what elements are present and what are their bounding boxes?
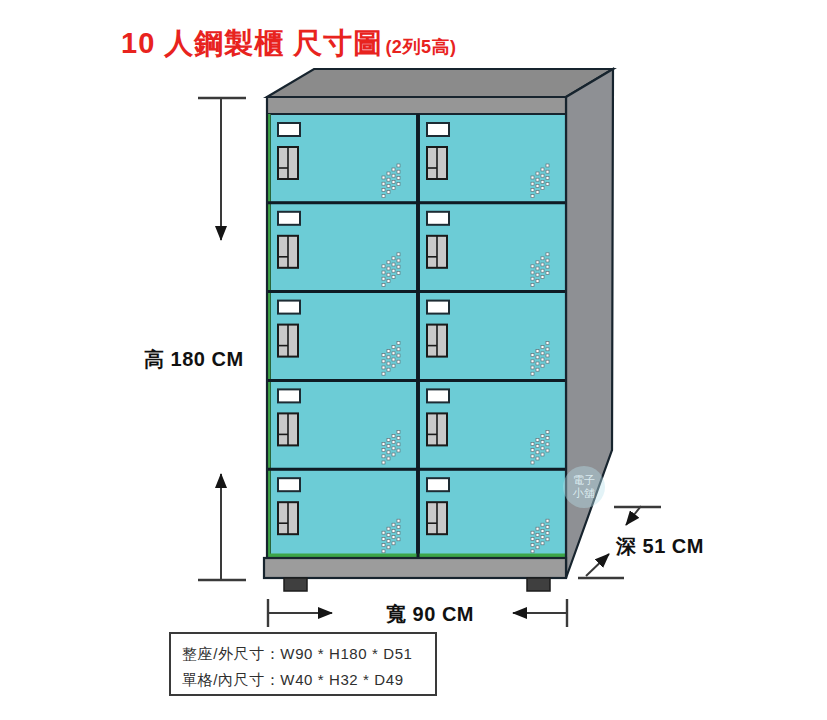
locker-door — [270, 380, 417, 469]
cabinet-foot — [284, 578, 307, 591]
watermark-line2: 小舖 — [572, 487, 595, 499]
width-label: 寬 90 CM — [386, 603, 474, 625]
watermark: 電子 小舖 — [563, 466, 605, 508]
cabinet-top-face — [267, 69, 613, 97]
locker-door — [419, 203, 566, 292]
locker-door — [270, 114, 417, 203]
locker-door — [419, 469, 566, 558]
cabinet-top-band — [267, 97, 566, 114]
locker-diagram: 電子 小舖 高 180 CM 寬 90 CM 深 51 CM — [0, 0, 827, 720]
locker-door — [270, 469, 417, 558]
locker-door — [270, 292, 417, 381]
page-root: 10 人鋼製櫃 尺寸圖 (2列5高) — [0, 0, 827, 720]
spec-line-inner: 單格/內尺寸：W40 * H32 * D49 — [182, 667, 435, 693]
depth-label: 深 51 CM — [615, 535, 704, 557]
spec-line-outer: 整座/外尺寸：W90 * H180 * D51 — [182, 641, 435, 667]
locker-door — [419, 380, 566, 469]
depth-arrow-up — [586, 554, 609, 576]
locker-door — [419, 114, 566, 203]
watermark-line1: 電子 — [573, 474, 595, 486]
height-dimension — [198, 98, 246, 580]
cabinet-foot — [527, 578, 550, 591]
locker-door — [419, 292, 566, 381]
spec-box: 整座/外尺寸：W90 * H180 * D51 單格/內尺寸：W40 * H32… — [169, 632, 437, 696]
cabinet-base — [264, 558, 566, 578]
depth-arrow-down — [626, 506, 641, 525]
locker-door — [270, 203, 417, 292]
height-label: 高 180 CM — [144, 348, 244, 370]
